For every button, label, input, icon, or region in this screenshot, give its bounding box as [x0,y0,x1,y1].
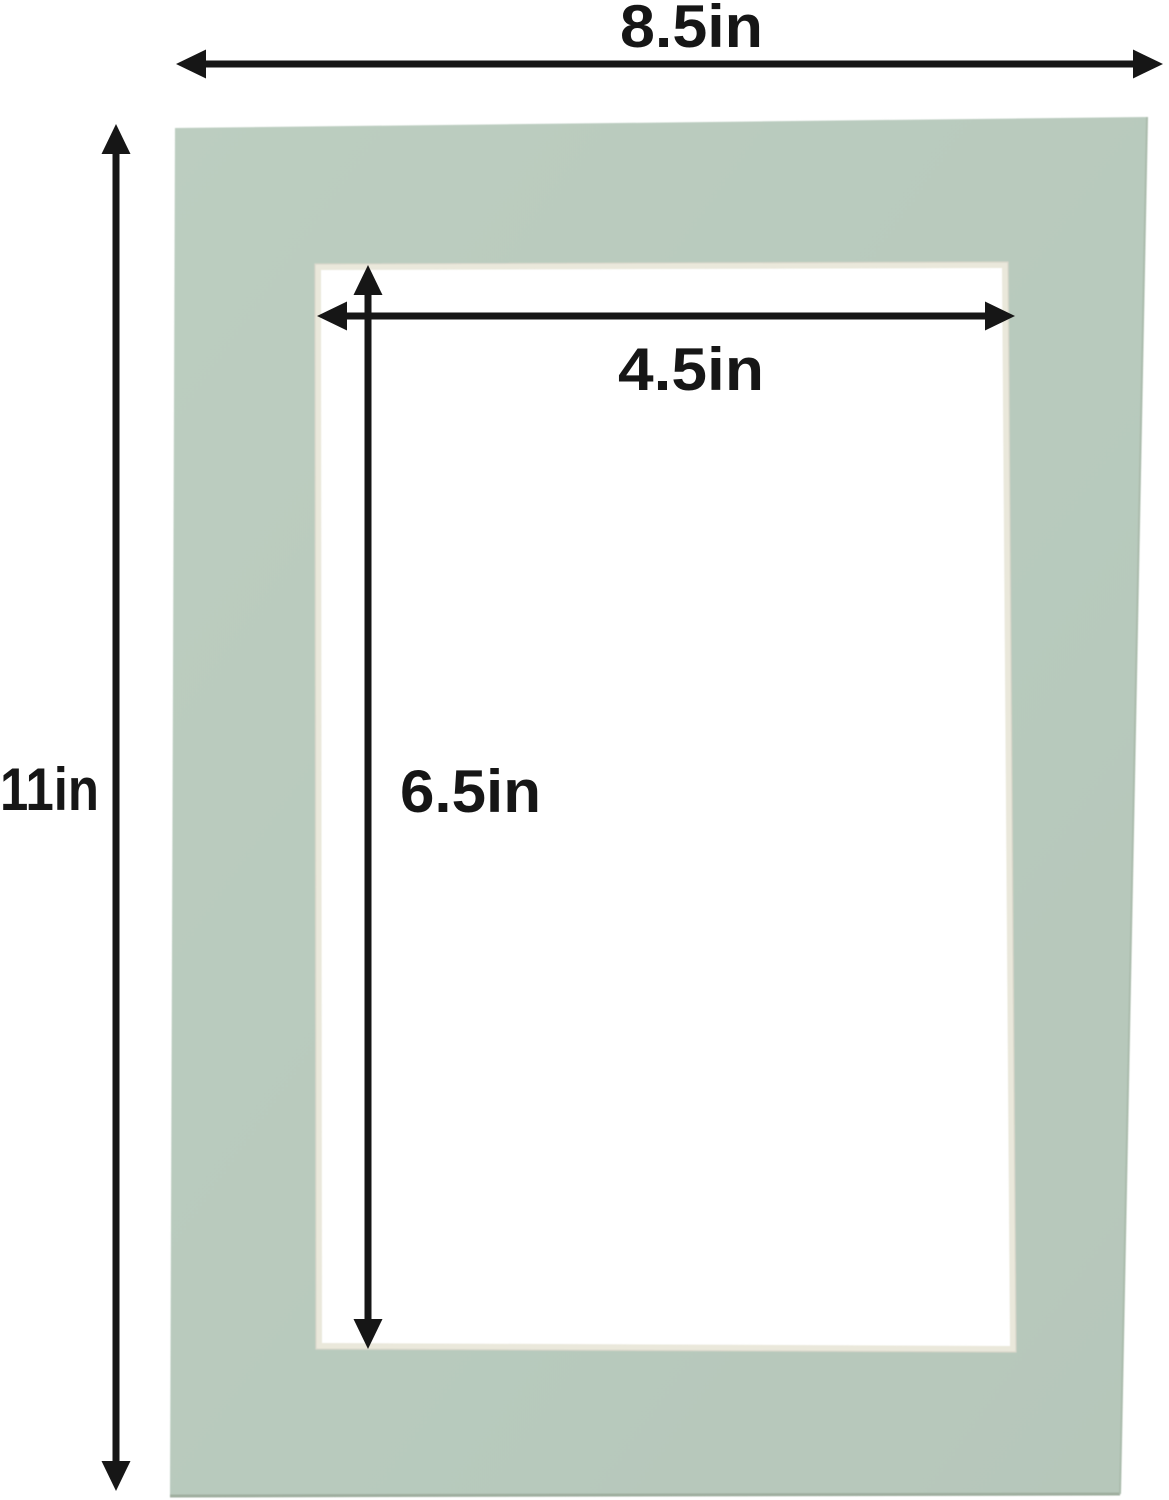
svg-text:8.5in: 8.5in [620,0,763,60]
svg-text:4.5in: 4.5in [618,336,764,403]
svg-text:11in: 11in [0,756,99,823]
svg-text:6.5in: 6.5in [400,758,541,825]
